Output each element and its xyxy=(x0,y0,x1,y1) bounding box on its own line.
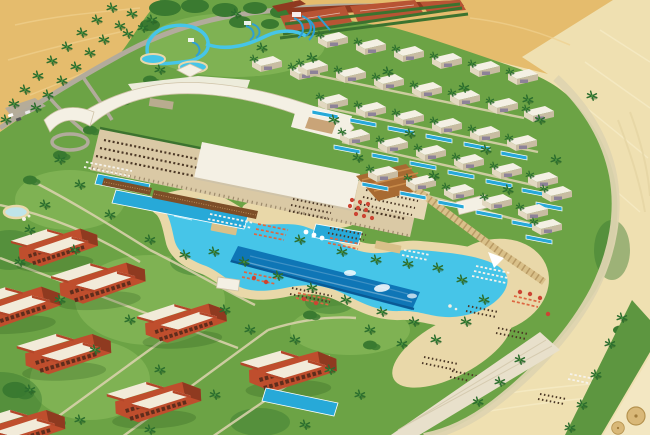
straw-umbrella xyxy=(627,407,645,425)
resort-aerial-rendering xyxy=(0,0,650,435)
aquapark-pool xyxy=(141,54,165,64)
straw-umbrella xyxy=(612,422,625,435)
